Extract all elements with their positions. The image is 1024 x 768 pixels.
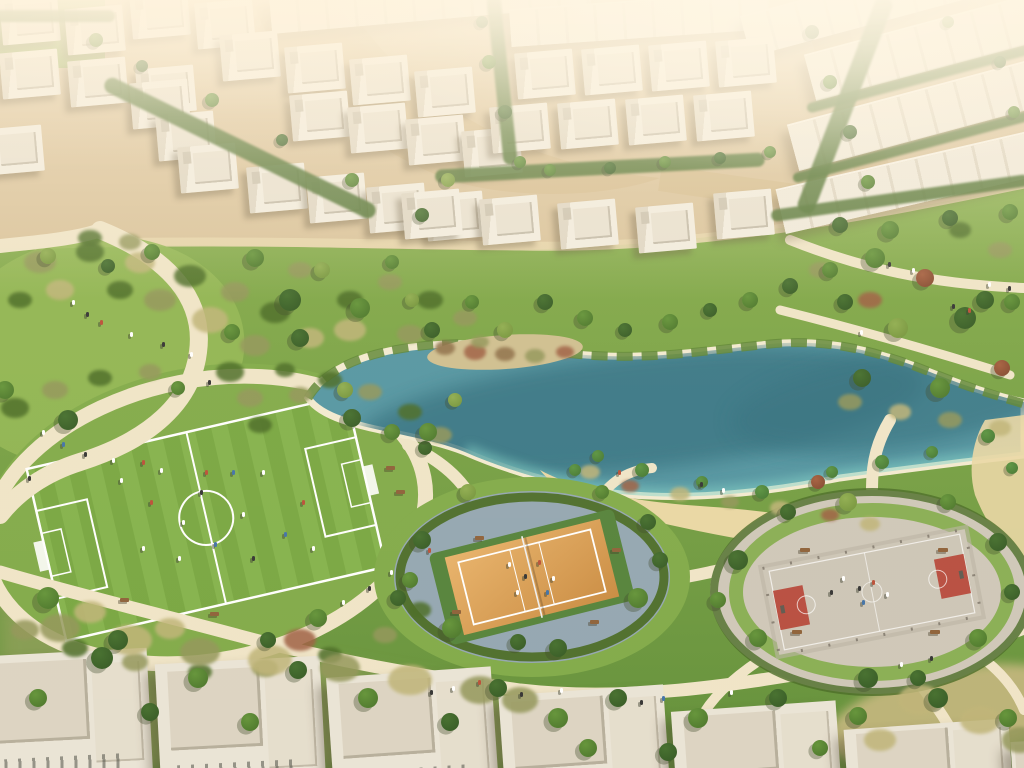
- basketball-plaza: [710, 490, 1024, 694]
- aerial-community-render: [0, 0, 1024, 768]
- volleyball-plaza: [374, 477, 690, 677]
- top-left-lawn: [0, 0, 105, 68]
- terrain: [0, 0, 1024, 768]
